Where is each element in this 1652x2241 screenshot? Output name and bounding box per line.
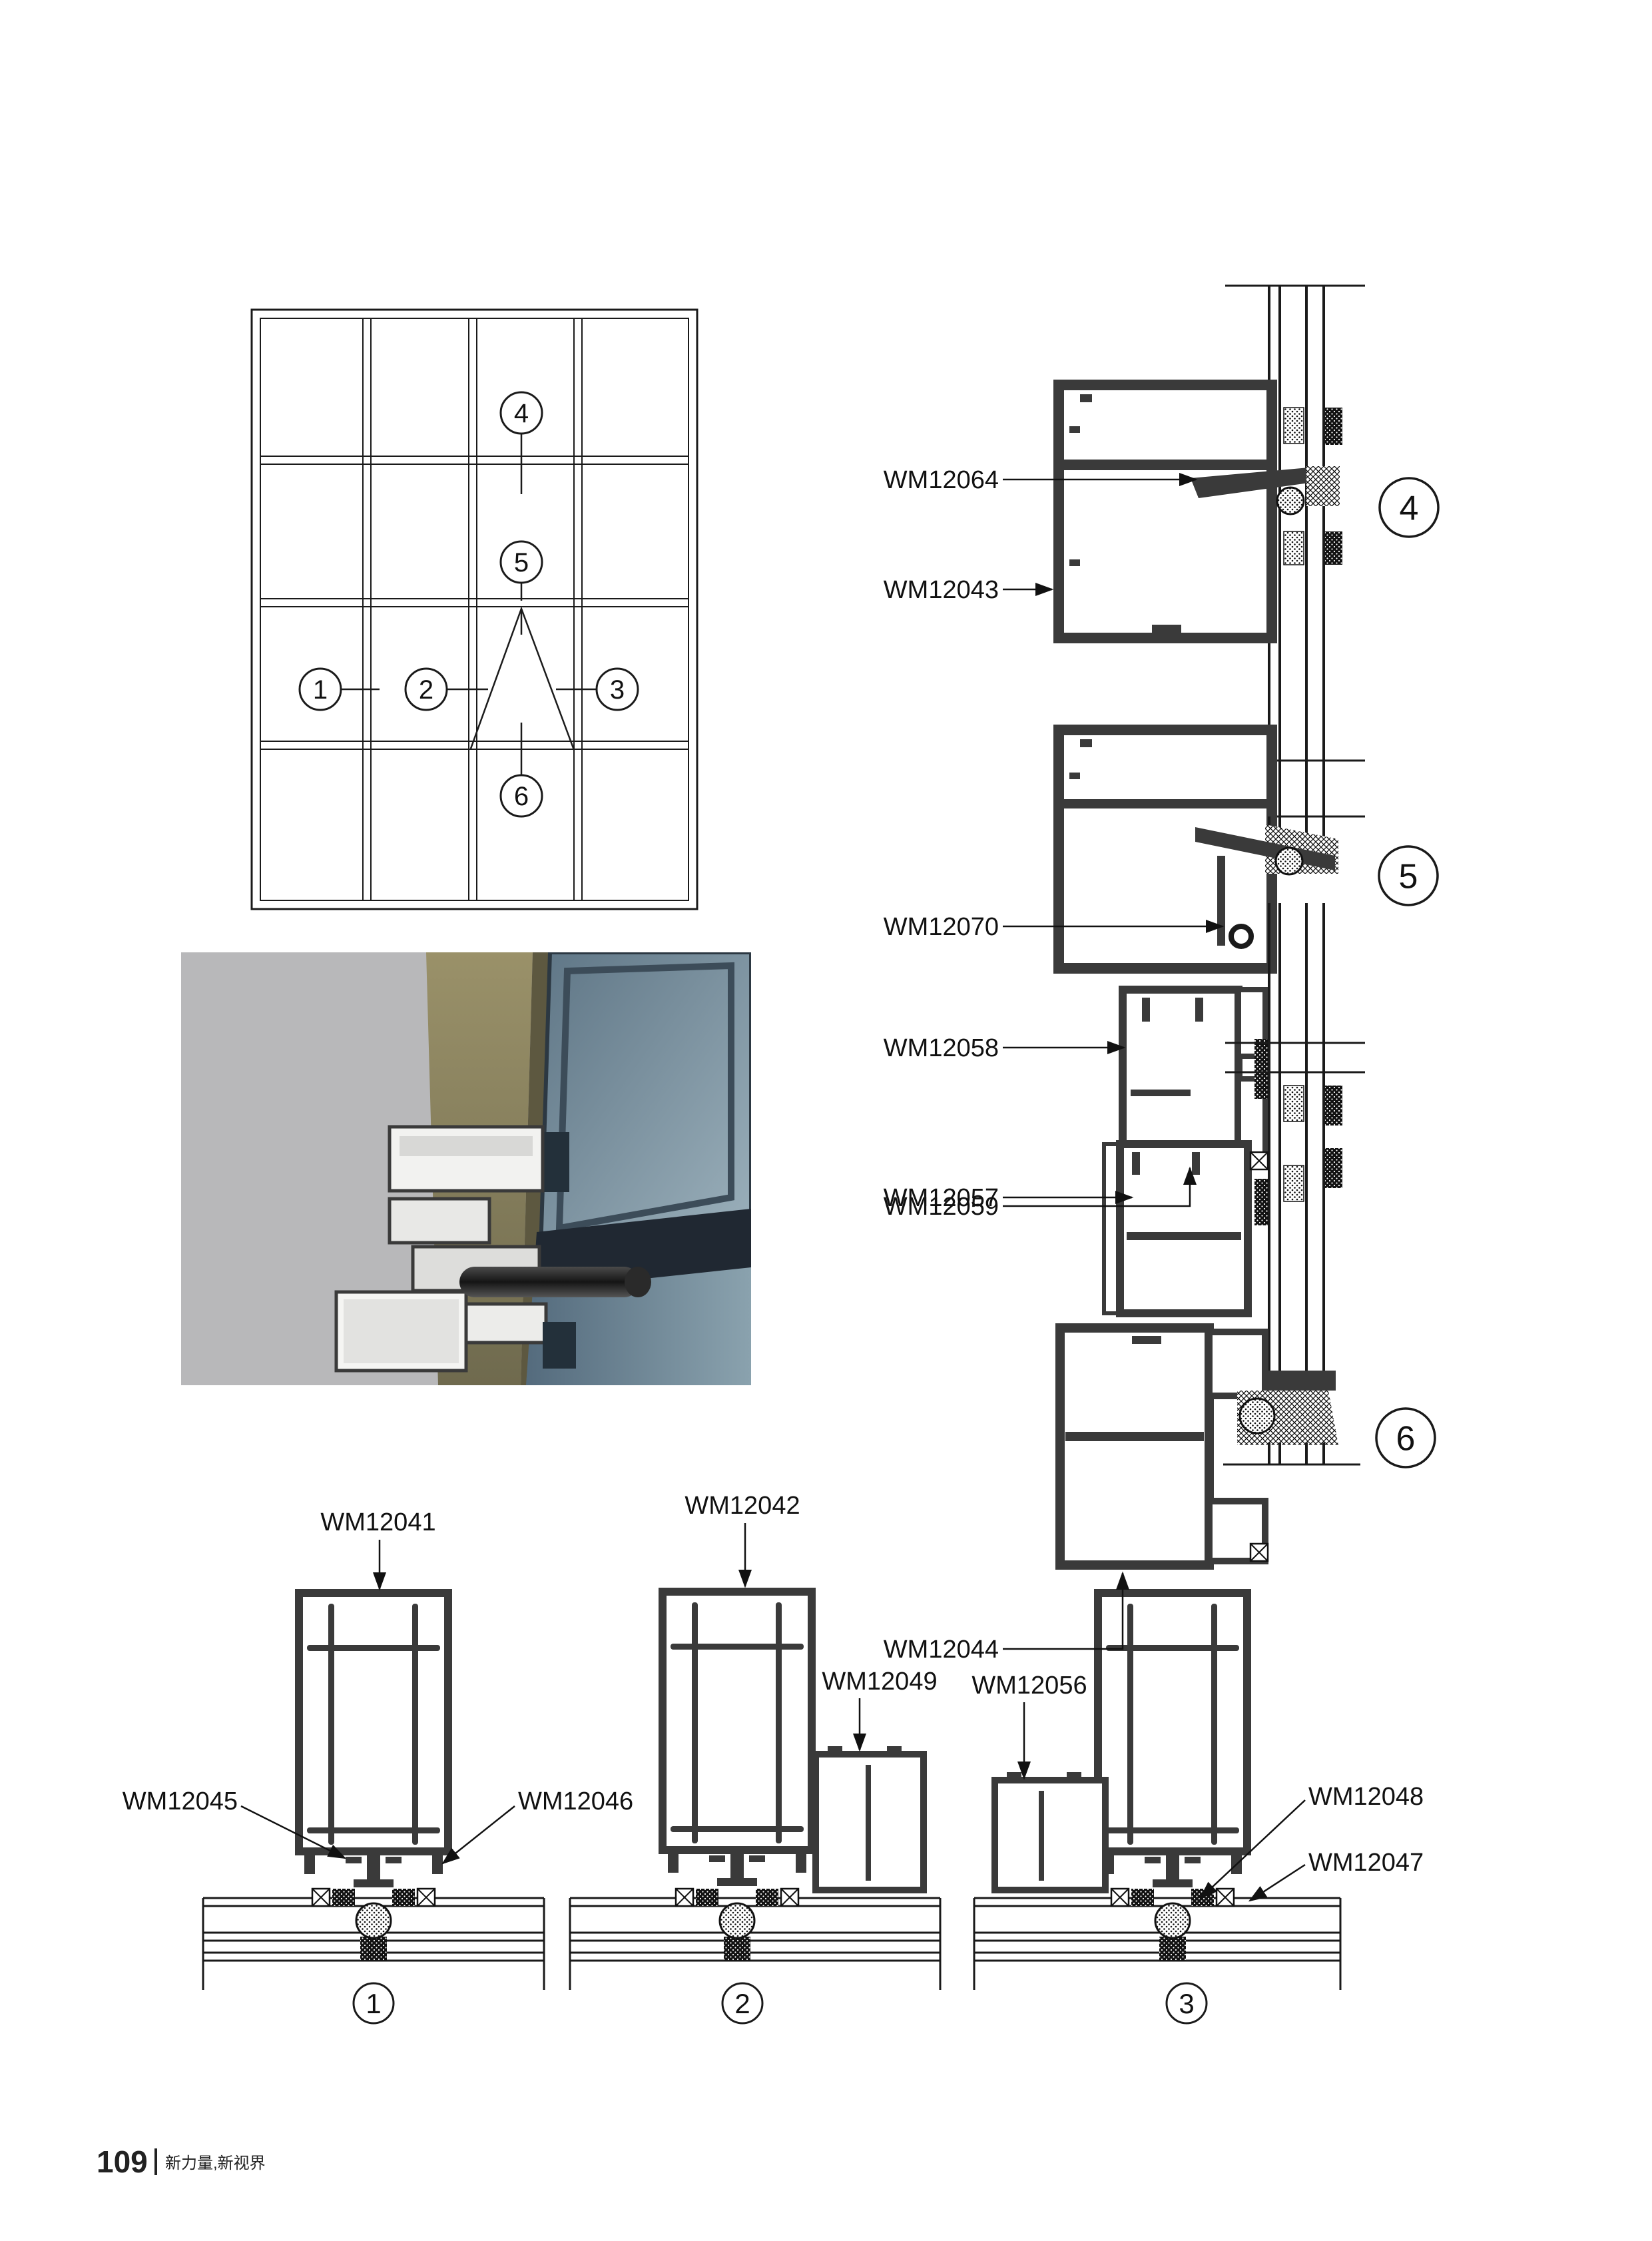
part-label-wm12044: WM12044 — [884, 1636, 999, 1664]
elevation-callout-2: 2 — [406, 669, 447, 710]
part-label-wm12042: WM12042 — [685, 1492, 800, 1520]
footer-slogan: 新力量,新视界 — [165, 2154, 266, 2172]
elevation-callout-4: 4 — [501, 392, 542, 434]
window-frame-section3 — [1098, 1593, 1247, 1887]
part-label-wm12048: WM12048 — [1308, 1783, 1424, 1811]
elevation-callout-6: 6 — [501, 775, 542, 816]
connector-WM12070 — [1217, 856, 1225, 946]
gasket-honeycomb — [1240, 1399, 1274, 1433]
part-label-wm12070: WM12070 — [884, 913, 999, 941]
side-profile-WM12056 — [995, 1772, 1105, 1890]
part-label-wm12064: WM12064 — [884, 466, 999, 494]
glass-unit — [1269, 903, 1324, 1373]
frame-profile-WM12058 — [1123, 990, 1239, 1160]
window-frame-WM12041 — [299, 1593, 448, 1887]
detail5-number: 5 — [1399, 858, 1418, 896]
section2-number: 2 — [734, 1988, 750, 2019]
part-label-wm12056: WM12056 — [971, 1672, 1087, 1700]
glass-panel-upper — [541, 952, 751, 1251]
callout-number: 5 — [514, 548, 529, 577]
gasket-honeycomb — [1277, 487, 1304, 514]
screw-boss-cylinder — [459, 1267, 639, 1297]
callout-number: 4 — [514, 399, 529, 428]
awning-open-symbol — [471, 609, 574, 750]
callout-number: 6 — [514, 782, 529, 811]
section3-number: 3 — [1179, 1988, 1194, 2019]
page-canvas: 1 2 3 4 5 6 — [0, 0, 1652, 2241]
transom-profile-WM12044 — [1060, 1328, 1209, 1565]
gasket-honeycomb — [720, 1903, 754, 1938]
detail4-number: 4 — [1400, 489, 1419, 528]
part-label-wm12058: WM12058 — [884, 1034, 999, 1062]
elevation-callout-3: 3 — [597, 669, 638, 710]
o-ring-gasket — [1231, 926, 1251, 946]
section1-number: 1 — [366, 1988, 381, 2019]
part-label-wm12043: WM12043 — [884, 576, 999, 604]
window-frame-WM12042 — [663, 1592, 812, 1886]
gasket-honeycomb — [356, 1903, 391, 1938]
gasket-honeycomb — [1276, 848, 1302, 874]
panel-bottom-rail — [1262, 1371, 1336, 1391]
page-footer: 109 新力量,新视界 — [97, 2144, 266, 2179]
detail6-number: 6 — [1396, 1420, 1416, 1458]
page-number: 109 — [97, 2144, 148, 2179]
part-label-wm12049: WM12049 — [822, 1668, 937, 1696]
callout-number: 2 — [419, 675, 433, 705]
part-label-wm12057: WM12057 — [884, 1184, 999, 1212]
part-label-wm12045: WM12045 — [123, 1787, 238, 1815]
transom-profile-WM12043 — [1059, 385, 1272, 638]
part-label-wm12046: WM12046 — [518, 1787, 633, 1815]
elevation-drawing: 1 2 3 4 5 6 — [252, 310, 697, 909]
elevation-callout-1: 1 — [300, 669, 341, 710]
catalog-page: 1 2 3 4 5 6 — [0, 0, 1652, 2241]
horizontal-detail-1 — [203, 1593, 544, 1990]
vertical-detail-6 — [1060, 1144, 1360, 1565]
callout-number: 3 — [610, 675, 625, 705]
elevation-callout-5: 5 — [501, 541, 542, 583]
side-profile-WM12049 — [816, 1746, 924, 1890]
gasket-honeycomb — [1155, 1903, 1190, 1938]
product-render-photo — [181, 952, 751, 1385]
part-label-wm12047: WM12047 — [1308, 1849, 1424, 1877]
callout-number: 1 — [313, 675, 328, 705]
part-label-wm12041: WM12041 — [320, 1508, 435, 1536]
horizontal-detail-3 — [974, 1593, 1340, 1990]
